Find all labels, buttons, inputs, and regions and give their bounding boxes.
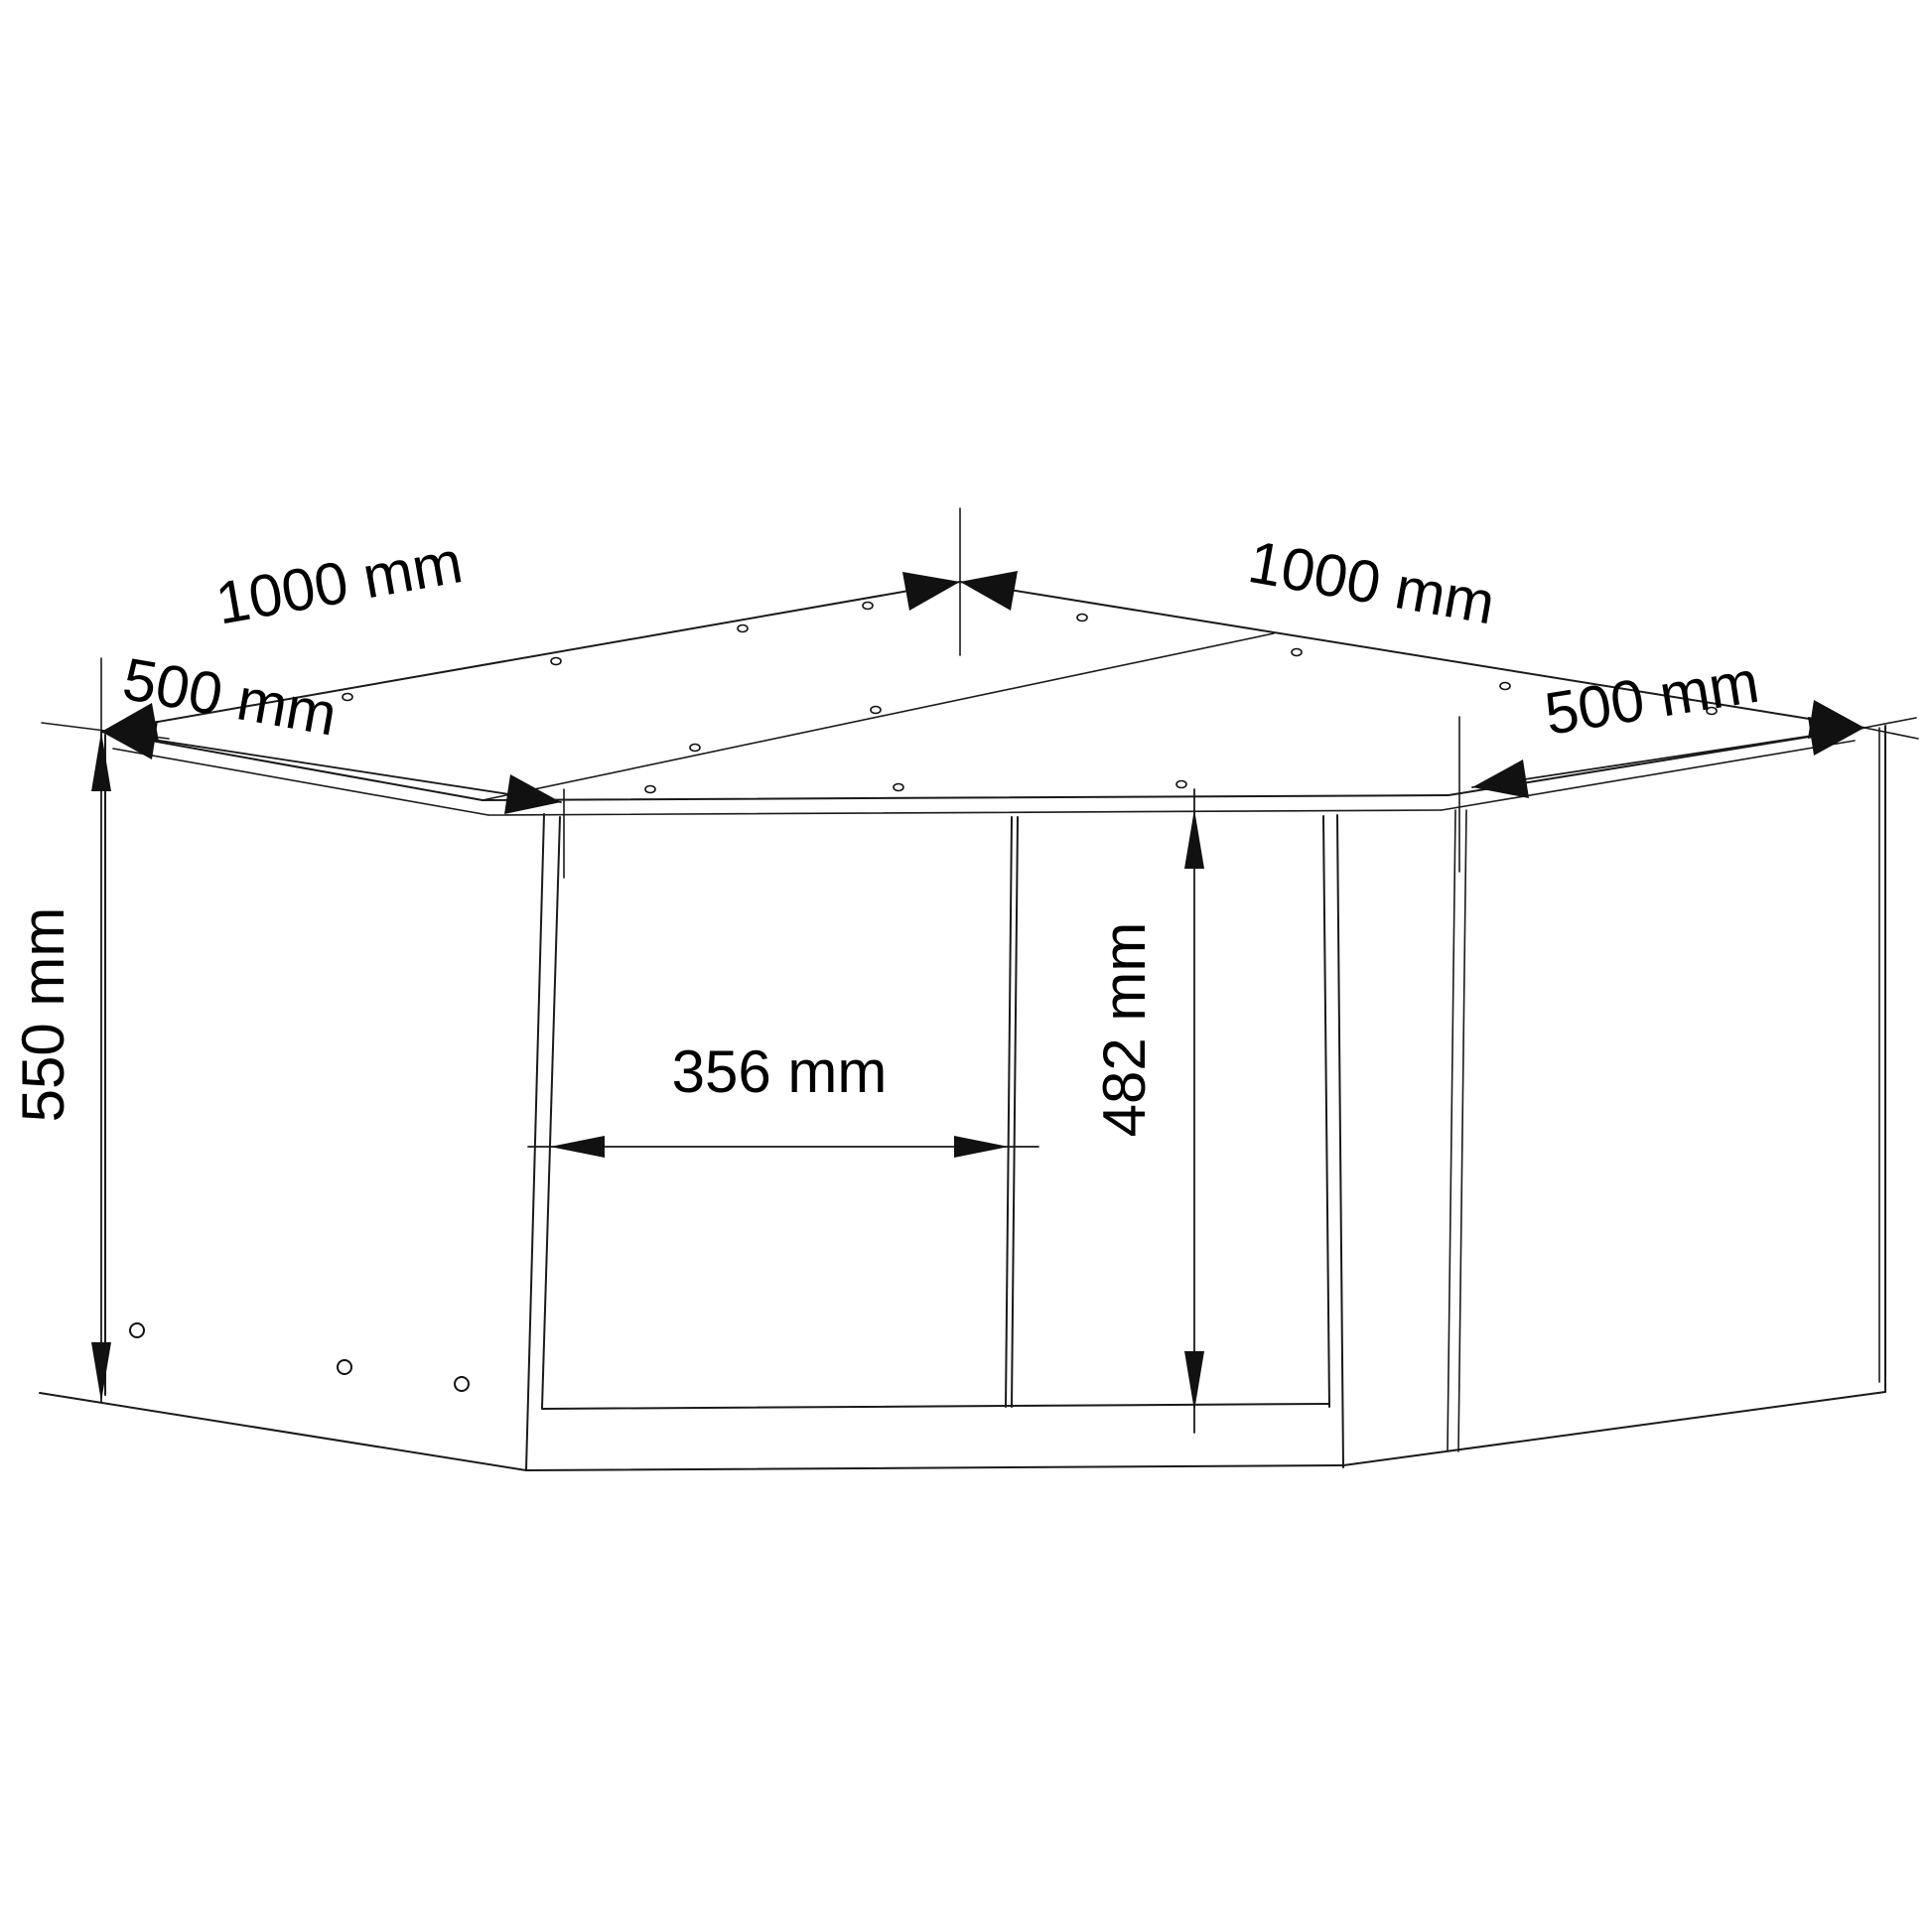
dim-line-right-depth bbox=[1472, 728, 1864, 787]
left-panel-holes bbox=[130, 1323, 469, 1391]
technical-drawing-canvas: 1000 mm 1000 mm 500 mm 500 mm 550 mm 356… bbox=[0, 0, 1932, 1932]
dim-label-door-width: 356 mm bbox=[672, 1038, 888, 1105]
arrowhead-right-depth-inner bbox=[1472, 759, 1529, 798]
dim-label-right-side-depth: 500 mm bbox=[1541, 648, 1764, 748]
right-return-edge-inner bbox=[1448, 810, 1455, 1450]
arrowhead-right-depth-outer bbox=[1808, 717, 1864, 756]
dimension-lines bbox=[101, 728, 1864, 1433]
left-panel-bottom-edge bbox=[40, 1393, 526, 1470]
screw-hole bbox=[863, 603, 873, 610]
arrowhead-left-depth-inner bbox=[504, 774, 561, 814]
door-gap-right-line bbox=[1012, 817, 1018, 1407]
dim-label-door-height: 482 mm bbox=[1091, 922, 1158, 1138]
right-door-edge bbox=[1323, 816, 1329, 1407]
panel-hole bbox=[130, 1323, 144, 1337]
screw-hole bbox=[645, 786, 655, 793]
dim-label-back-left-width: 1000 mm bbox=[210, 528, 467, 636]
screw-hole bbox=[894, 784, 903, 791]
right-corner-overshoot-a bbox=[1864, 728, 1918, 739]
corner-cabinet-diagram: 1000 mm 1000 mm 500 mm 500 mm 550 mm 356… bbox=[0, 0, 1932, 1932]
arrowhead-back-left-at-apex bbox=[902, 572, 960, 611]
front-bottom-edge bbox=[526, 1465, 1343, 1470]
screw-hole bbox=[1176, 781, 1186, 788]
left-front-post-edge bbox=[526, 814, 544, 1469]
arrowhead-height-top bbox=[91, 732, 111, 791]
arrowhead-door-height-bottom bbox=[1184, 1351, 1204, 1411]
doors-bottom-edge bbox=[542, 1404, 1329, 1409]
left-door-edge bbox=[542, 817, 560, 1408]
right-panel-bottom-edge bbox=[1343, 1392, 1885, 1465]
screw-hole bbox=[871, 707, 881, 714]
right-corner-overshoot-b bbox=[1864, 718, 1916, 728]
dim-label-cabinet-height: 550 mm bbox=[10, 907, 76, 1123]
cabinet-body bbox=[40, 726, 1885, 1470]
top-face-screw-holes bbox=[343, 603, 1717, 793]
panel-hole bbox=[455, 1377, 469, 1391]
screw-hole bbox=[1500, 683, 1510, 690]
dimension-labels: 1000 mm 1000 mm 500 mm 500 mm 550 mm 356… bbox=[10, 528, 1763, 1137]
screw-hole bbox=[690, 745, 700, 752]
screw-hole bbox=[551, 658, 561, 665]
screw-hole bbox=[1077, 615, 1087, 621]
right-return-edge-outer bbox=[1458, 810, 1466, 1451]
arrowhead-back-right-at-apex bbox=[960, 571, 1018, 611]
screw-hole bbox=[738, 625, 748, 632]
panel-hole bbox=[338, 1360, 351, 1374]
arrowhead-left-depth-outer bbox=[101, 721, 158, 759]
arrowhead-door-height-top bbox=[1184, 809, 1204, 869]
dim-label-back-right-width: 1000 mm bbox=[1244, 528, 1500, 636]
right-front-post-edge bbox=[1337, 815, 1343, 1467]
top-band-front bbox=[488, 810, 1442, 815]
edge-front-top bbox=[483, 795, 1449, 800]
screw-hole bbox=[1292, 649, 1302, 656]
arrowhead-door-width-left bbox=[550, 1136, 605, 1158]
arrowhead-height-bottom bbox=[91, 1342, 111, 1402]
top-panel-joint-line bbox=[483, 633, 1274, 800]
screw-hole bbox=[343, 694, 352, 701]
door-gap-left-line bbox=[1006, 817, 1012, 1407]
edge-left-top bbox=[101, 732, 483, 800]
arrowhead-door-width-right bbox=[954, 1136, 1009, 1158]
